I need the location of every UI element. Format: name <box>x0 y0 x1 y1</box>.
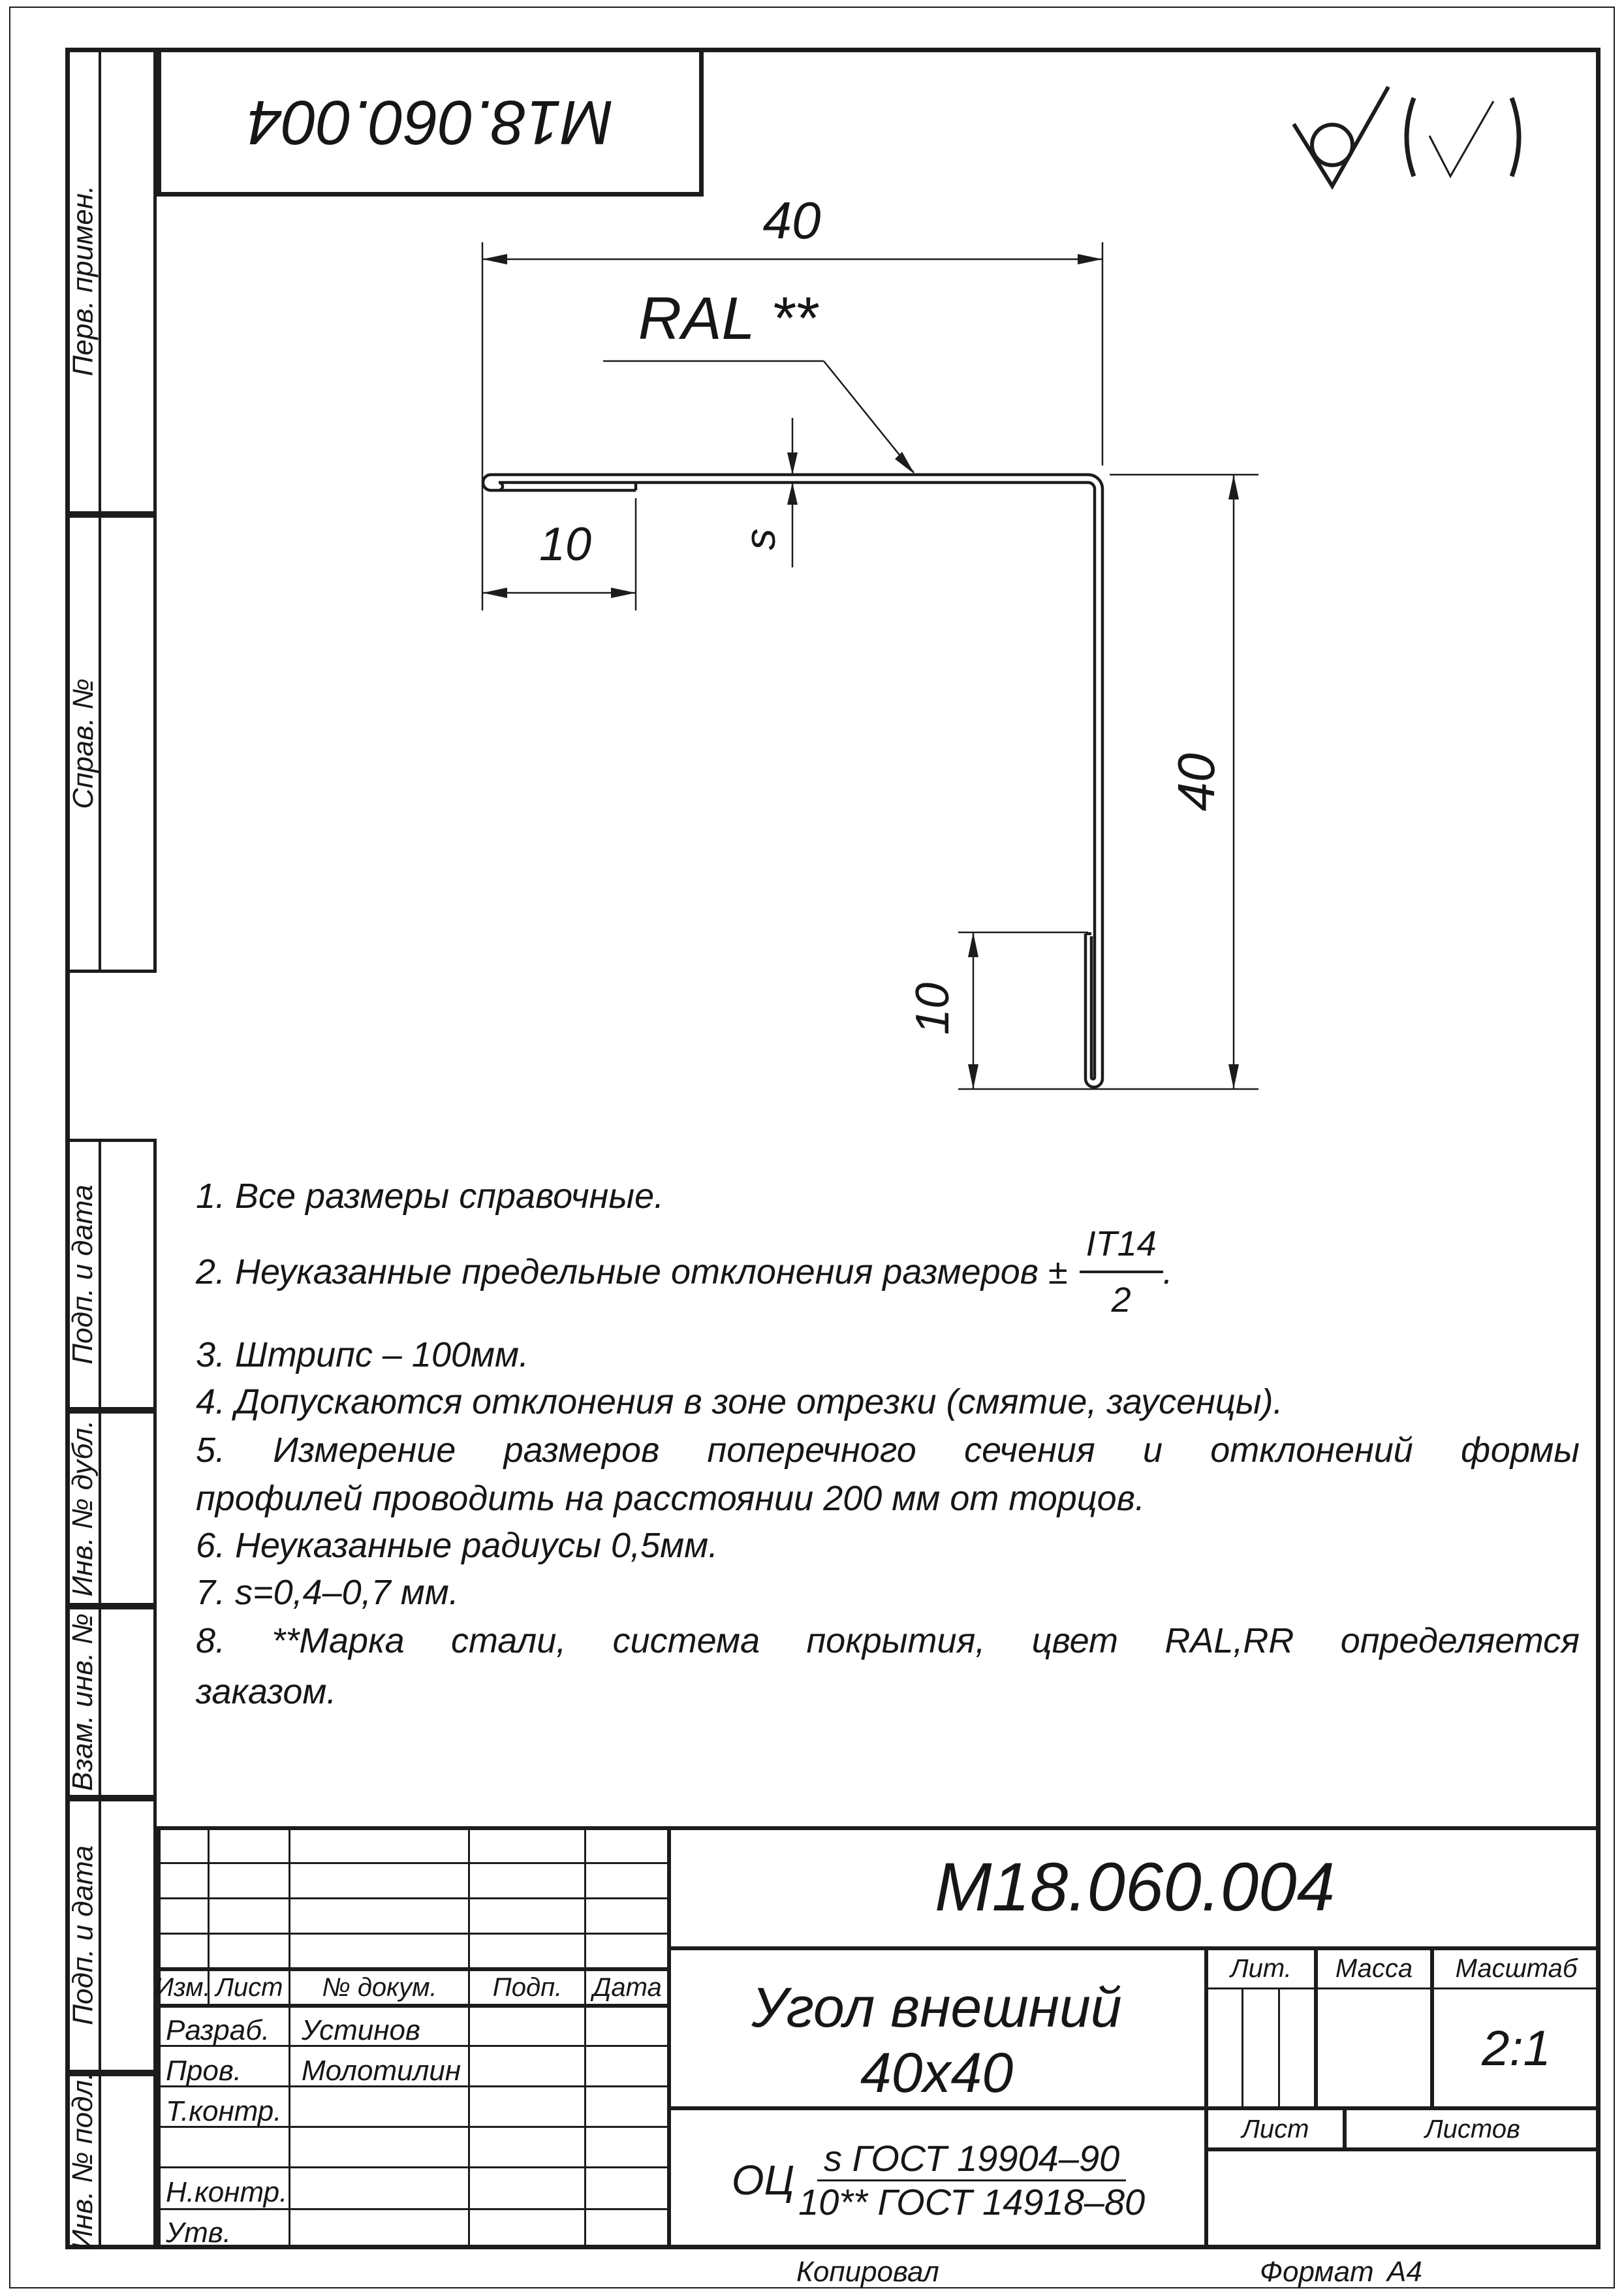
tb-lit-header: Лит. <box>1206 1950 1316 1987</box>
note-2-tail: . <box>1163 1248 1173 1296</box>
dim-text-top-hem: 10 <box>500 521 631 568</box>
note-7: 7. s=0,4–0,7 мм. <box>196 1568 1580 1617</box>
strip-label-sprav-no: Справ. № <box>66 514 101 973</box>
footer-copied: Копировал <box>796 2258 939 2287</box>
tb-line-thin <box>468 1826 470 2249</box>
note-2-frac-den: 2 <box>1112 1273 1131 1324</box>
strip-label-inv-dubl: Инв. № дубл. <box>65 1410 101 1606</box>
roughness-icons <box>1273 65 1547 209</box>
tb-staff-utv-label: Утв. <box>166 2219 231 2247</box>
drawing-sheet: М18.060.004 Перв. примен. Справ. № Подп.… <box>0 0 1624 2295</box>
footer-format-label: Формат <box>1260 2258 1374 2287</box>
tb-part-name-line1: Угол внешний <box>669 1978 1204 2037</box>
tb-material-prefix: ОЦ <box>732 2159 794 2201</box>
tb-material-fraction: s ГОСТ 19904–90 10** ГОСТ 14918–80 <box>798 2140 1145 2221</box>
note-6: 6. Неуказанные радиусы 0,5мм. <box>196 1521 1580 1570</box>
tb-line-thin <box>157 1862 669 1864</box>
tb-designation: М18.060.004 <box>669 1828 1601 1946</box>
strip-label-perv-primen: Перв. примен. <box>66 48 101 514</box>
dim-text-right-leg: 40 <box>1170 717 1223 847</box>
tb-line-thin <box>157 1933 669 1935</box>
note-4: 4. Допускаются отклонения в зоне отрезки… <box>196 1378 1580 1426</box>
profile-inner-contour <box>636 483 1095 1079</box>
tb-header-izm: Изм. <box>157 1969 209 2006</box>
tb-staff-nkontr-label: Н.контр. <box>166 2178 287 2207</box>
tb-staff-prov-name: Молотилин <box>302 2057 461 2085</box>
tb-staff-prov-label: Пров. <box>166 2057 242 2085</box>
note-8-line-1: 8. **Марка стали, система покрытия, цвет… <box>196 1617 1580 1665</box>
note-2-text: 2. Неуказанные предельные отклонения раз… <box>196 1248 1068 1296</box>
tb-line-thin <box>1241 1989 1243 2108</box>
thickness-label: s <box>735 507 785 572</box>
dimension-arrowheads <box>482 254 1239 1089</box>
tb-staff-razrab-name: Устинов <box>302 2016 420 2045</box>
tb-header-podp: Подп. <box>469 1969 586 2006</box>
dim-text-top-leg: 40 <box>726 195 857 247</box>
stamp-top-number: М18.060.004 <box>247 91 613 153</box>
tb-header-data: Дата <box>586 1969 669 2006</box>
tb-list-label: Лист <box>1206 2108 1345 2149</box>
tb-line-thin <box>584 1826 586 2249</box>
coating-label: RAL ** <box>610 289 845 349</box>
tb-material-num: s ГОСТ 19904–90 <box>817 2140 1126 2181</box>
tb-material-cell: ОЦ s ГОСТ 19904–90 10** ГОСТ 14918–80 <box>676 2115 1201 2245</box>
tb-massa-header: Масса <box>1316 1950 1432 1987</box>
tb-material-den: 10** ГОСТ 14918–80 <box>798 2181 1145 2221</box>
tb-listov-label: Листов <box>1345 2108 1601 2149</box>
note-5-line-1: 5. Измерение размеров поперечного сечени… <box>196 1426 1580 1474</box>
strip-label-inv-podl: Инв. № подл. <box>65 2073 101 2249</box>
strip-label-vzam-inv: Взам. инв. № <box>65 1606 101 1798</box>
note-2: 2. Неуказанные предельные отклонения раз… <box>196 1220 1580 1324</box>
roughness-check-circle-icon <box>1294 87 1388 186</box>
tb-line-thin <box>1278 1989 1280 2108</box>
tb-scale-value: 2:1 <box>1432 1989 1601 2108</box>
tb-staff-tkontr-label: Т.контр. <box>166 2097 282 2126</box>
tb-line <box>1204 1946 1208 2249</box>
note-2-frac-num: IT14 <box>1080 1220 1163 1273</box>
note-5-line-2: профилей проводить на расстоянии 200 мм … <box>196 1474 1580 1523</box>
note-8-line-2: заказом. <box>196 1668 1580 1716</box>
strip-label-podp-data-2: Подп. и дата <box>66 1798 101 2073</box>
tb-line-thin <box>289 1826 290 2249</box>
tb-line-thin <box>157 1897 669 1899</box>
strip-label-podp-data-1: Подп. и дата <box>65 1139 101 1410</box>
tb-part-name-line2: 40x40 <box>669 2044 1204 2102</box>
note-1: 1. Все размеры справочные. <box>196 1172 1580 1220</box>
tb-line-thin <box>157 2208 669 2210</box>
note-3: 3. Штрипс – 100мм. <box>196 1331 1580 1379</box>
footer-format-value: А4 <box>1387 2258 1422 2287</box>
tb-header-doc: № докум. <box>290 1969 469 2006</box>
profile-drawing <box>392 196 1371 1175</box>
stamp-top-box: М18.060.004 <box>157 48 704 197</box>
note-2-fraction: IT14 2 <box>1080 1220 1163 1324</box>
tb-line-thin <box>157 2166 669 2168</box>
tb-staff-razrab-label: Разраб. <box>166 2016 270 2045</box>
tb-line <box>157 1826 161 2249</box>
dim-text-bottom-hem: 10 <box>908 943 958 1074</box>
tb-masshtab-header: Масштаб <box>1432 1950 1601 1987</box>
roughness-bracketed-check-icon <box>1407 98 1519 176</box>
tb-header-list: Лист <box>209 1969 290 2006</box>
